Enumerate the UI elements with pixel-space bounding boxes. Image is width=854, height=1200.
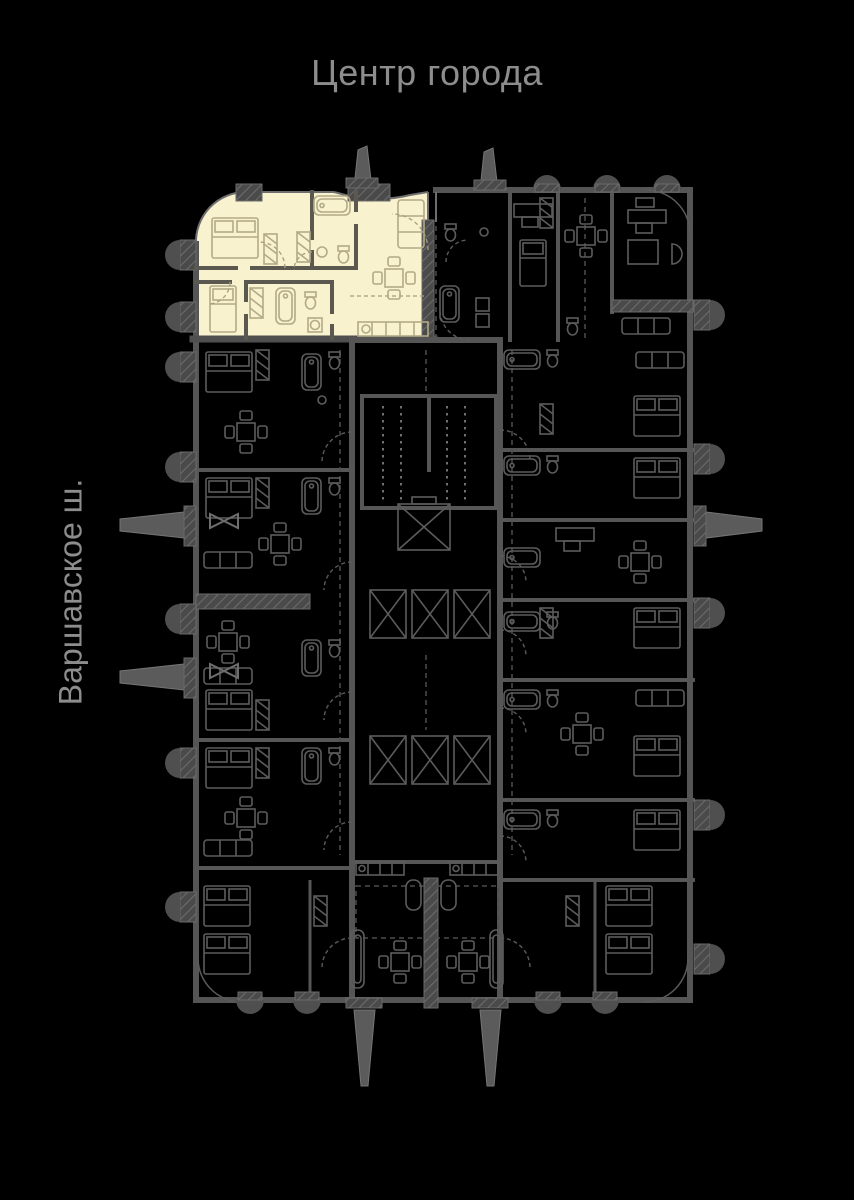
balcony-column (180, 302, 196, 332)
balcony (694, 300, 725, 974)
toilet (547, 810, 558, 827)
sink (480, 228, 488, 236)
facade-fin (120, 512, 184, 538)
bed (206, 690, 252, 730)
bathtub (302, 478, 321, 514)
bed (634, 608, 680, 648)
toilet (329, 478, 340, 495)
bed (204, 886, 250, 926)
sink (318, 396, 326, 404)
facade-fin (480, 1010, 501, 1086)
apartments-left (204, 350, 340, 974)
bed (634, 458, 680, 498)
stairwell (362, 396, 496, 508)
bathtub (504, 350, 540, 369)
elevator (370, 590, 406, 638)
wardrobe (540, 404, 553, 434)
table (628, 240, 658, 264)
dining-table (561, 713, 603, 755)
monitor (636, 198, 654, 207)
dining-table (225, 411, 267, 453)
facade-fin (706, 512, 762, 538)
elevator (454, 736, 490, 784)
bed (204, 934, 250, 974)
toilet (329, 640, 340, 657)
bed (634, 396, 680, 436)
wardrobe (314, 896, 327, 926)
apartments-top (440, 198, 682, 335)
toilet (547, 690, 558, 707)
facade-fin (354, 1010, 375, 1086)
dining-table (379, 941, 421, 983)
bed (520, 240, 546, 286)
bathtub (504, 612, 540, 631)
dining-table (565, 215, 607, 257)
dining-table (225, 797, 267, 839)
wardrobe (256, 478, 269, 508)
elevator (398, 497, 450, 550)
bed (206, 478, 252, 518)
bathtub (302, 640, 321, 676)
bed (206, 748, 252, 788)
balcony-column (180, 240, 196, 270)
elevator (412, 590, 448, 638)
sofa (204, 668, 252, 684)
sofa (204, 552, 252, 568)
bathtub (504, 810, 540, 829)
sofa (204, 840, 252, 856)
bathtub (406, 880, 421, 910)
toilet (567, 318, 578, 335)
chair (672, 244, 682, 264)
wardrobe (540, 198, 553, 228)
floor-plan (0, 0, 854, 1200)
toilet (329, 352, 340, 369)
dining-table (447, 941, 489, 983)
bathtub (440, 286, 459, 322)
sofa (622, 318, 670, 334)
toilet (547, 456, 558, 473)
balcony (165, 352, 196, 922)
wall-block (236, 184, 262, 201)
bed (606, 934, 652, 974)
bathtub (441, 880, 456, 910)
toilet (547, 350, 558, 367)
elevator (412, 736, 448, 784)
elevator (454, 590, 490, 638)
sofa (636, 690, 684, 706)
sofa (636, 352, 684, 368)
bed (634, 810, 680, 850)
bathtub (302, 354, 321, 390)
bathtub (302, 748, 321, 784)
dining-table (259, 523, 301, 565)
washer (476, 298, 489, 311)
wardrobe (256, 700, 269, 730)
balcony (533, 175, 681, 192)
wardrobe (566, 896, 579, 926)
toilet (329, 748, 340, 765)
elevator (370, 736, 406, 784)
bathtub (504, 690, 540, 709)
bathtub (504, 456, 540, 475)
highlighted-apartment[interactable] (165, 184, 434, 339)
desk (556, 528, 594, 551)
facade-fin (120, 664, 184, 690)
wardrobe (256, 748, 269, 778)
bed (606, 886, 652, 926)
toilet (445, 224, 456, 241)
bed (634, 736, 680, 776)
dining-table (207, 621, 249, 663)
washer (476, 314, 489, 327)
dining-table (619, 541, 661, 583)
wardrobe (256, 350, 269, 380)
bed (206, 352, 252, 392)
desk (628, 210, 666, 233)
